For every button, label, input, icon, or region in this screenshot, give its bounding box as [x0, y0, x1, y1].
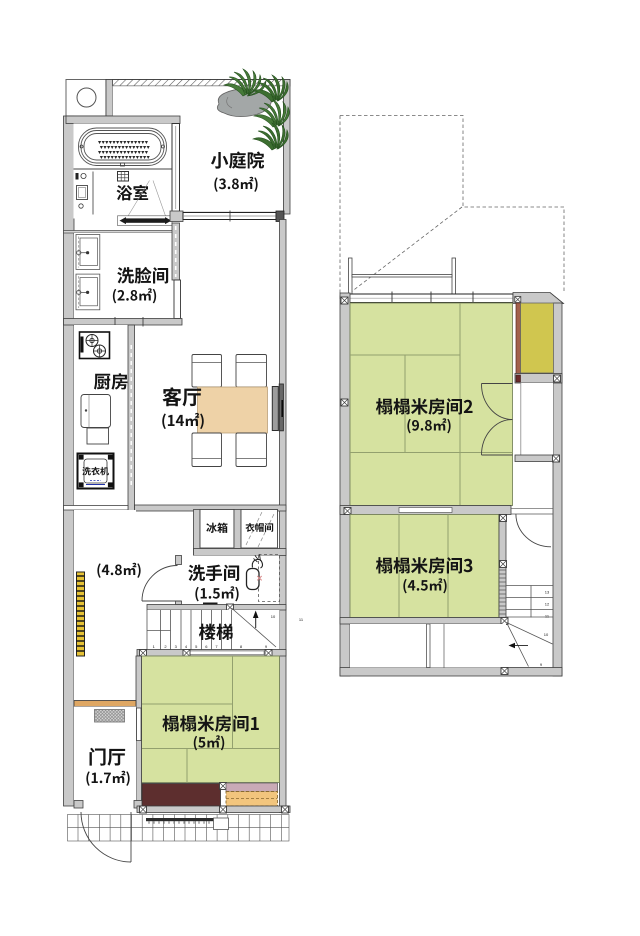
- svg-text:12: 12: [545, 602, 550, 607]
- svg-text:10: 10: [271, 614, 276, 619]
- svg-text:13: 13: [545, 590, 550, 595]
- svg-text:11: 11: [299, 617, 304, 622]
- svg-text:10: 10: [544, 632, 549, 637]
- svg-text:11: 11: [545, 614, 550, 619]
- svg-text:9: 9: [540, 662, 543, 667]
